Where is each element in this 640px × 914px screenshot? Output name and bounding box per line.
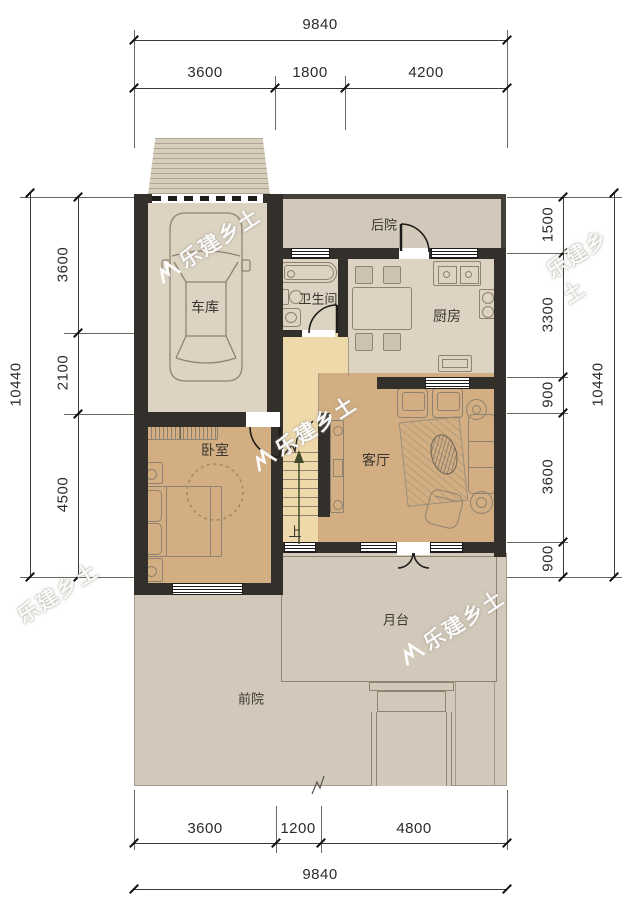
dim-left-seg-2: 2100 bbox=[55, 343, 72, 403]
platform-step-1 bbox=[369, 682, 454, 691]
bathtub bbox=[281, 262, 337, 283]
dim-right-seg-1: 1500 bbox=[540, 195, 557, 255]
living-south-window bbox=[360, 542, 397, 553]
label-stairs-up: 上 bbox=[288, 522, 301, 541]
armchair bbox=[432, 388, 463, 418]
hall-floor-2 bbox=[283, 377, 318, 412]
wall-bedroom-east bbox=[271, 412, 283, 595]
label-backyard: 后院 bbox=[371, 215, 397, 234]
kitchen-sink bbox=[433, 261, 481, 286]
dim-left-seg-1: 3600 bbox=[55, 235, 72, 295]
dim-line-bottom-overall bbox=[134, 889, 507, 890]
armchair bbox=[397, 388, 428, 418]
garage-door bbox=[152, 194, 263, 203]
label-kitchen: 厨房 bbox=[433, 306, 461, 326]
dim-bottom-seg-3: 4800 bbox=[384, 820, 444, 837]
hall-floor bbox=[283, 333, 348, 377]
dim-bottom-seg-2: 1200 bbox=[268, 820, 328, 837]
watermark: 乐建乡土 bbox=[0, 555, 104, 646]
kitchen-window bbox=[431, 248, 478, 259]
living-north-window bbox=[425, 377, 470, 389]
wall-bathroom-south bbox=[277, 330, 303, 337]
entry-door-opening bbox=[397, 542, 430, 555]
dim-top-seg-2: 1800 bbox=[280, 64, 340, 81]
stove bbox=[479, 289, 495, 319]
bathroom-window bbox=[291, 248, 330, 259]
dim-right-overall: 10440 bbox=[590, 355, 607, 415]
backdoor-opening bbox=[399, 248, 429, 259]
dining-table bbox=[352, 287, 412, 330]
wall-west bbox=[134, 194, 148, 595]
bathroom-sink bbox=[281, 308, 301, 327]
dim-left-seg-3: 4500 bbox=[55, 465, 72, 525]
wall-garage-east bbox=[267, 194, 283, 425]
driveway-ramp bbox=[148, 138, 270, 195]
watermark-text: 乐建乡土 bbox=[11, 555, 104, 630]
toilet-tank bbox=[282, 289, 289, 305]
label-bedroom: 卧室 bbox=[201, 440, 229, 460]
label-front-yard: 前院 bbox=[238, 689, 264, 708]
dim-line-top-overall bbox=[134, 40, 507, 41]
wall-stair-east bbox=[318, 413, 330, 517]
dim-right-seg-4: 3600 bbox=[540, 447, 557, 507]
bathroom-door-opening bbox=[302, 330, 335, 337]
label-bathroom: 卫生间 bbox=[298, 289, 337, 308]
dim-top-seg-3: 4200 bbox=[396, 64, 456, 81]
backyard-fence bbox=[278, 194, 506, 199]
bedroom-door-opening bbox=[246, 412, 280, 427]
label-living-room: 客厅 bbox=[362, 450, 390, 470]
watermark: 乐建乡土 bbox=[517, 211, 640, 324]
living-south-window-2 bbox=[430, 542, 463, 553]
dining-chair bbox=[383, 266, 401, 284]
wall-bathroom-east bbox=[338, 259, 348, 337]
dim-line-left-segments bbox=[78, 197, 79, 577]
entrance-walkway bbox=[371, 712, 452, 786]
dining-chair bbox=[355, 333, 373, 351]
dim-line-left-overall bbox=[30, 193, 31, 577]
platform-step-2 bbox=[377, 691, 446, 712]
dining-chair bbox=[383, 333, 401, 351]
dim-line-top-segments bbox=[134, 88, 507, 89]
wall-east bbox=[494, 248, 506, 557]
tv-stand bbox=[330, 420, 344, 513]
stair-treads bbox=[283, 452, 318, 518]
side-table bbox=[470, 491, 493, 514]
label-platform: 月台 bbox=[383, 610, 409, 629]
label-garage: 车库 bbox=[191, 297, 219, 317]
bed bbox=[137, 486, 222, 557]
dim-right-seg-5: 900 bbox=[540, 529, 557, 589]
dim-bottom-seg-1: 3600 bbox=[175, 820, 235, 837]
dim-top-overall: 9840 bbox=[290, 16, 350, 33]
dim-line-right-overall bbox=[614, 193, 615, 577]
sofa bbox=[468, 414, 496, 494]
yard-path-line bbox=[455, 682, 456, 786]
watermark-logo-icon bbox=[0, 611, 21, 641]
floor-plan: 9840 3600 1800 4200 10440 3600 2100 4500… bbox=[0, 0, 640, 914]
dim-top-seg-1: 3600 bbox=[175, 64, 235, 81]
yard-path-line bbox=[494, 682, 495, 786]
dining-chair bbox=[355, 266, 373, 284]
stair-window bbox=[284, 542, 316, 553]
dim-right-seg-2: 3300 bbox=[540, 285, 557, 345]
dim-bottom-overall: 9840 bbox=[290, 866, 350, 883]
dim-right-seg-3: 900 bbox=[540, 365, 557, 425]
bedroom-window bbox=[172, 583, 243, 595]
dim-left-overall: 10440 bbox=[8, 355, 25, 415]
kitchen-cabinet bbox=[438, 355, 472, 372]
wall-garage-north bbox=[134, 194, 152, 203]
